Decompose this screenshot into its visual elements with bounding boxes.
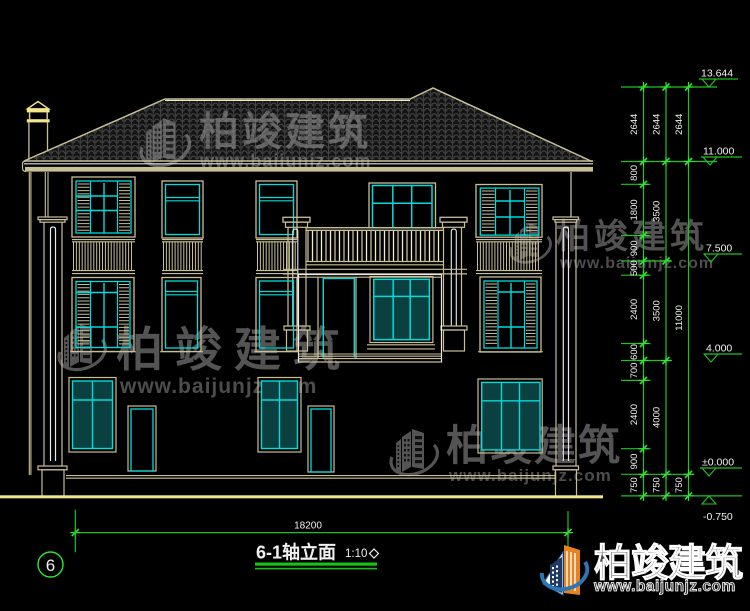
svg-text:750: 750: [674, 477, 685, 493]
svg-text:3500: 3500: [652, 300, 663, 321]
svg-text:750: 750: [629, 477, 640, 493]
svg-text:1:10: 1:10: [345, 548, 367, 560]
svg-text:6-1轴立面: 6-1轴立面: [256, 542, 336, 563]
svg-text:18200: 18200: [294, 521, 322, 532]
svg-text:3500: 3500: [652, 201, 663, 222]
svg-text:2644: 2644: [674, 114, 685, 135]
svg-text:1800: 1800: [629, 199, 640, 220]
svg-text:700: 700: [629, 363, 640, 379]
svg-text:13.644: 13.644: [701, 68, 733, 80]
svg-text:500: 500: [629, 260, 640, 276]
svg-text:-0.750: -0.750: [703, 511, 733, 523]
svg-text:6: 6: [46, 556, 55, 575]
svg-text:4000: 4000: [652, 407, 663, 428]
svg-text:600: 600: [629, 344, 640, 360]
svg-text:柏竣建筑: 柏竣建筑: [116, 323, 352, 376]
svg-text:±0.000: ±0.000: [702, 457, 734, 469]
svg-text:2400: 2400: [629, 404, 640, 425]
svg-text:11000: 11000: [674, 305, 685, 331]
svg-text:2644: 2644: [652, 114, 663, 135]
svg-text:750: 750: [652, 477, 663, 493]
svg-text:11.000: 11.000: [703, 146, 734, 158]
svg-text:2644: 2644: [629, 114, 640, 135]
svg-text:www.baijunjz.com: www.baijunjz.com: [593, 578, 736, 595]
svg-text:2400: 2400: [629, 299, 640, 320]
svg-text:900: 900: [629, 454, 640, 470]
svg-text:7.500: 7.500: [706, 243, 732, 255]
svg-text:800: 800: [629, 165, 640, 181]
svg-text:柏竣建筑: 柏竣建筑: [199, 110, 371, 154]
svg-text:900: 900: [629, 240, 640, 256]
svg-text:4.000: 4.000: [706, 343, 732, 355]
